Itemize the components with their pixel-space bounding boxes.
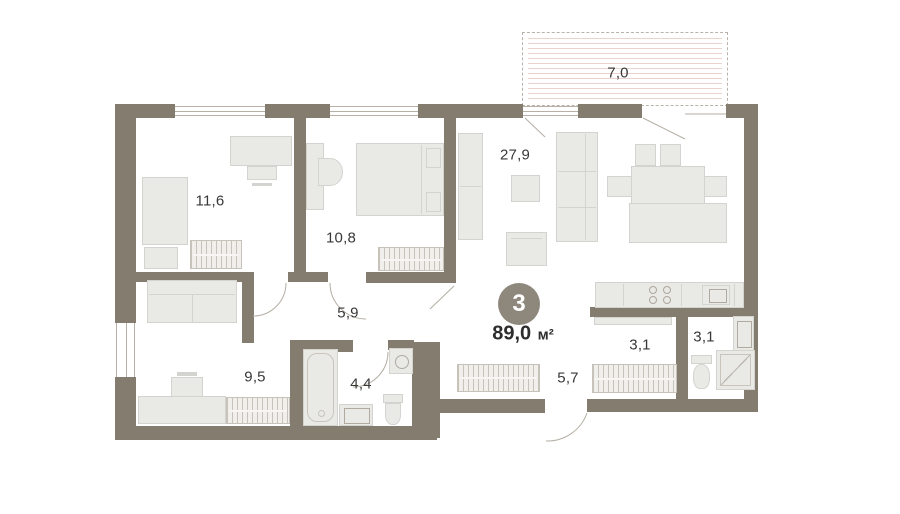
room-area-label: 11,6	[196, 193, 225, 210]
entrance-door-swing	[546, 413, 587, 441]
door-swing-lines	[0, 0, 900, 514]
room-area-label: 5,9	[337, 305, 358, 322]
door-swing	[253, 283, 286, 316]
room-area-label: 3,1	[693, 329, 714, 346]
rooms-count: 3	[512, 290, 525, 318]
room-area-label: 5,7	[557, 370, 578, 387]
room-area-label: 10,8	[326, 230, 356, 247]
room-area-label: 3,1	[629, 337, 650, 354]
room-area-label: 27,9	[500, 147, 530, 164]
total-area-value: 89,0	[492, 323, 531, 345]
balcony-door-swing	[643, 118, 685, 139]
rooms-count-badge: 3	[498, 283, 540, 325]
door-swing	[525, 118, 545, 137]
total-area-label: 89,0 м²	[492, 323, 553, 346]
door-swing	[430, 286, 454, 309]
room-area-label: 7,0	[607, 65, 628, 82]
room-area-label: 4,4	[350, 376, 371, 393]
floor-plan: 11,6 10,8 27,9 7,0 5,9 9,5 4,4 5,7 3,1 3…	[0, 0, 900, 514]
room-area-label: 9,5	[244, 369, 265, 386]
total-area-unit: м²	[538, 327, 554, 344]
